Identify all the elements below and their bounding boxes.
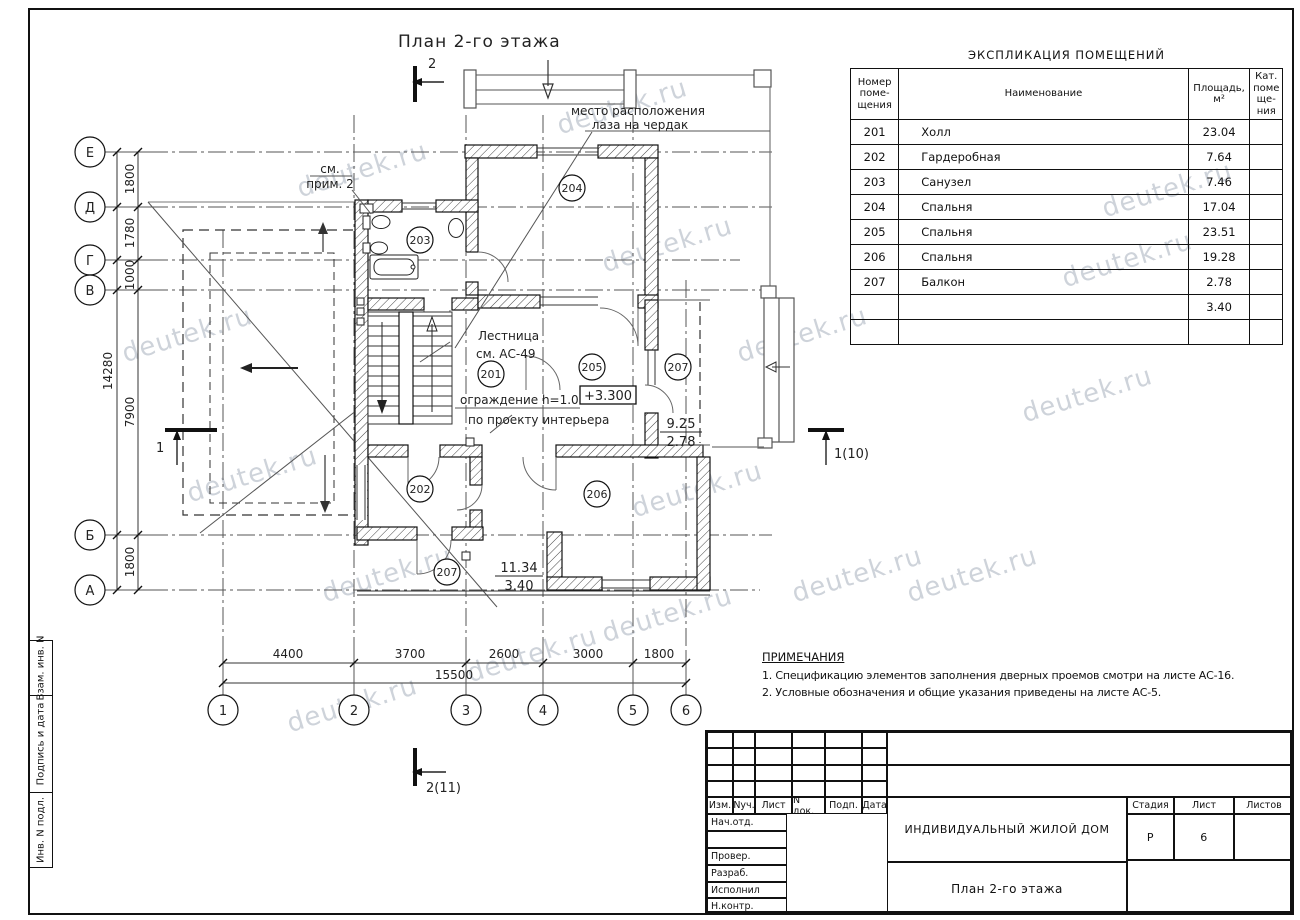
table-cell (1250, 295, 1283, 320)
col-header-name: Наименование (899, 69, 1188, 120)
rev-grid-cell (862, 732, 887, 748)
rev-grid-cell (707, 765, 733, 781)
dim-bottom-2: 2600 (489, 647, 520, 661)
stage-value: Р (1127, 814, 1174, 860)
room-tag-202: 202 (410, 483, 431, 496)
balcony-bottom-num: 11.34 (500, 561, 537, 576)
stamp-cell-label: Взам. инв. N (35, 636, 46, 701)
axis-col-label: 4 (539, 704, 547, 719)
table-cell (1250, 320, 1283, 345)
table-cell (1250, 170, 1283, 195)
stairs-label-line2: см. АС-49 (476, 347, 535, 361)
section-marker-left: 1 (156, 428, 217, 465)
balcony-right-num: 9.25 (667, 417, 696, 432)
stamp-cell-label: Подпись и дата (35, 703, 46, 786)
rev-header: N док. (792, 797, 825, 814)
notes-heading: ПРИМЕЧАНИЯ (762, 650, 1232, 664)
stamp-column: Взам. инв. N Подпись и дата Инв. N подл. (28, 640, 53, 868)
dim-bottom-1: 3700 (395, 647, 426, 661)
table-row: 205Спальня23.51 (851, 220, 1283, 245)
table-cell: 204 (851, 195, 899, 220)
tb-top-cell (887, 732, 1294, 765)
section-label-bottom: 2(11) (426, 781, 461, 796)
room-tag-205: 205 (582, 361, 603, 374)
dim-left-4: 1800 (123, 547, 137, 578)
dimensions-left: 1800 1780 1000 7900 1800 14280 (101, 148, 150, 594)
table-cell: 17.04 (1188, 195, 1250, 220)
axis-row-label: Д (85, 201, 95, 216)
washbasin-icon (449, 219, 464, 238)
axis-col-label: 1 (219, 704, 227, 719)
table-cell: 206 (851, 245, 899, 270)
note-ref-line2: прим. 2 (306, 177, 354, 191)
rev-grid-cell (733, 765, 755, 781)
section-label-left: 1 (156, 441, 164, 456)
axis-col-label: 5 (629, 704, 637, 719)
rev-grid-cell (733, 781, 755, 797)
signer-row-label (707, 831, 787, 848)
table-row: 206Спальня19.28 (851, 245, 1283, 270)
signer-row-label: Провер. (707, 848, 787, 865)
rev-grid-cell (825, 748, 862, 764)
table-cell (1250, 245, 1283, 270)
rev-header: Лист (755, 797, 792, 814)
toilet-tank-icon (363, 216, 370, 229)
table-cell: 203 (851, 170, 899, 195)
note-ref-line1: см. (320, 162, 339, 176)
dim-left-3: 7900 (123, 397, 137, 428)
rev-grid-cell (862, 765, 887, 781)
table-cell: 201 (851, 120, 899, 145)
explication-body: 201Холл23.04202Гардеробная7.64203Санузел… (851, 120, 1283, 345)
table-cell: 3.40 (1188, 295, 1250, 320)
table-cell: 23.51 (1188, 220, 1250, 245)
rev-grid-cell (792, 748, 825, 764)
dim-bottom-total: 15500 (435, 668, 473, 682)
stamp-cell: Взам. инв. N (29, 641, 52, 696)
rev-grid-cell (733, 732, 755, 748)
rev-grid-cell (707, 748, 733, 764)
axis-col-label: 3 (462, 704, 470, 719)
rev-header: Дата (862, 797, 887, 814)
rev-grid-cell (792, 765, 825, 781)
note-item: 1. Спецификацию элементов заполнения две… (762, 667, 1232, 684)
table-cell (899, 295, 1188, 320)
bathtub-drain (411, 265, 415, 269)
axis-row-label: Б (86, 529, 95, 544)
table-cell (1250, 120, 1283, 145)
table-row: 207Балкон2.78 (851, 270, 1283, 295)
table-cell: 202 (851, 145, 899, 170)
dim-left-2: 1000 (123, 260, 137, 291)
rev-header: Подп. (825, 797, 862, 814)
dim-bottom-4: 1800 (644, 647, 675, 661)
attic-label-line1: место расположения (571, 104, 705, 118)
col-header-cat: Кат. поме ще- ния (1250, 69, 1283, 120)
rev-grid-cell (825, 732, 862, 748)
table-cell: Спальня (899, 220, 1188, 245)
stairs (368, 312, 452, 424)
section-marker-top: 2 (412, 57, 444, 102)
notes-block: ПРИМЕЧАНИЯ 1. Спецификацию элементов зап… (762, 650, 1232, 701)
tb-top-cell (887, 765, 1294, 797)
section-marker-bottom: 2(11) (412, 748, 461, 796)
table-row: 204Спальня17.04 (851, 195, 1283, 220)
rev-grid-cell (862, 748, 887, 764)
dim-left-1: 1780 (123, 218, 137, 249)
table-cell: 19.28 (1188, 245, 1250, 270)
rev-grid-cell (707, 781, 733, 797)
sheets-total (1234, 814, 1294, 860)
table-cell (851, 320, 899, 345)
rev-grid-cell (825, 781, 862, 797)
table-cell (1188, 320, 1250, 345)
section-label-top: 2 (428, 57, 436, 72)
balcony-right-den: 2.78 (667, 435, 696, 450)
rev-grid-cell (792, 732, 825, 748)
room-tag-207b: 207 (437, 566, 458, 579)
table-cell: 7.46 (1188, 170, 1250, 195)
room-tag-206: 206 (587, 488, 608, 501)
table-cell: Балкон (899, 270, 1188, 295)
stamp-cell: Подпись и дата (29, 696, 52, 793)
stairs-label-line1: Лестница (478, 329, 539, 343)
drawing-sheet: deutek.rudeutek.rudeutek.rudeutek.rudeut… (0, 0, 1300, 920)
table-cell: Спальня (899, 245, 1188, 270)
col-header-area: Площадь, м² (1188, 69, 1250, 120)
axis-row-label: В (86, 284, 95, 299)
table-cell: 207 (851, 270, 899, 295)
axis-row-label: Г (86, 254, 94, 269)
table-cell (899, 320, 1188, 345)
railing-label-line2: по проекту интерьера (468, 413, 609, 427)
axis-row-label: А (86, 584, 95, 599)
rev-grid-cell (862, 781, 887, 797)
elevation-value: +3.300 (584, 389, 632, 404)
stamp-cell-label: Инв. N подл. (35, 796, 46, 862)
table-cell (1250, 145, 1283, 170)
tb-bottom-right-cell (1127, 860, 1294, 915)
rev-header: Изм. (707, 797, 733, 814)
section-marker-right: 1(10) (808, 428, 869, 465)
table-cell: Спальня (899, 195, 1188, 220)
rev-header: Nуч. (733, 797, 755, 814)
dimensions-bottom: 4400 3700 2600 3000 1800 15500 (219, 647, 690, 695)
room-tag-207a: 207 (668, 361, 689, 374)
table-cell: 205 (851, 220, 899, 245)
stamp-cell: Инв. N подл. (29, 793, 52, 866)
stage-header: Стадия (1127, 797, 1174, 814)
table-cell (1250, 270, 1283, 295)
table-row: 201Холл23.04 (851, 120, 1283, 145)
col-header-num: Номер поме- щения (851, 69, 899, 120)
room-tag-203: 203 (410, 234, 431, 247)
rev-grid-cell (755, 748, 792, 764)
section-label-right: 1(10) (834, 447, 869, 462)
toilet-icon (372, 216, 390, 229)
table-row: 203Санузел7.46 (851, 170, 1283, 195)
rev-grid-cell (733, 748, 755, 764)
elevation-mark: +3.300 (580, 386, 636, 404)
signer-row-label: Н.контр. (707, 898, 787, 915)
table-cell (851, 295, 899, 320)
sheet-number: 6 (1174, 814, 1234, 860)
rev-grid-cell (792, 781, 825, 797)
table-cell: 2.78 (1188, 270, 1250, 295)
bidet-icon (371, 242, 388, 254)
dim-bottom-3: 3000 (573, 647, 604, 661)
room-tag-204: 204 (562, 182, 583, 195)
table-cell: Санузел (899, 170, 1188, 195)
table-row (851, 320, 1283, 345)
table-cell (1250, 195, 1283, 220)
table-row: 202Гардеробная7.64 (851, 145, 1283, 170)
railing-label-line1: ограждение h=1.0м (460, 393, 588, 407)
note-item: 2. Условные обозначения и общие указания… (762, 684, 1232, 701)
rev-grid-cell (755, 781, 792, 797)
dim-left-0: 1800 (123, 164, 137, 195)
explication-title: ЭКСПЛИКАЦИЯ ПОМЕЩЕНИЙ (850, 48, 1283, 62)
signer-row-label: Разраб. (707, 865, 787, 882)
explication-table: Номер поме- щения Наименование Площадь, … (850, 68, 1283, 345)
attic-label-line2: лаза на чердак (592, 118, 689, 132)
signer-row-label: Исполнил (707, 882, 787, 898)
rev-grid-cell (707, 732, 733, 748)
axis-col-label: 2 (350, 704, 358, 719)
room-tag-201: 201 (481, 368, 502, 381)
bidet-tank-icon (363, 243, 370, 253)
table-cell (1250, 220, 1283, 245)
title-block: Изм. Nуч. Лист N док. Подп. Дата Нач.отд… (705, 730, 1292, 913)
table-header-row: Номер поме- щения Наименование Площадь, … (851, 69, 1283, 120)
table-row: 3.40 (851, 295, 1283, 320)
project-name: ИНДИВИДУАЛЬНЫЙ ЖИЛОЙ ДОМ (887, 797, 1127, 862)
rev-grid-cell (825, 765, 862, 781)
rev-grid-cell (755, 765, 792, 781)
rev-grid-cell (755, 732, 792, 748)
balcony-bottom-dims: 11.34 3.40 (495, 561, 543, 594)
drawing-name: План 2-го этажа (887, 862, 1127, 915)
dim-bottom-0: 4400 (273, 647, 304, 661)
stage-header: Листов (1234, 797, 1294, 814)
table-cell: 23.04 (1188, 120, 1250, 145)
table-cell: 7.64 (1188, 145, 1250, 170)
table-cell: Холл (899, 120, 1188, 145)
stage-header: Лист (1174, 797, 1234, 814)
axis-row-label: Е (86, 146, 94, 161)
signer-row-label: Нач.отд. (707, 814, 787, 831)
dim-left-total: 14280 (101, 352, 115, 390)
balcony-bottom-den: 3.40 (505, 579, 534, 594)
bathtub-inner (374, 259, 414, 275)
table-cell: Гардеробная (899, 145, 1188, 170)
axis-col-label: 6 (682, 704, 690, 719)
